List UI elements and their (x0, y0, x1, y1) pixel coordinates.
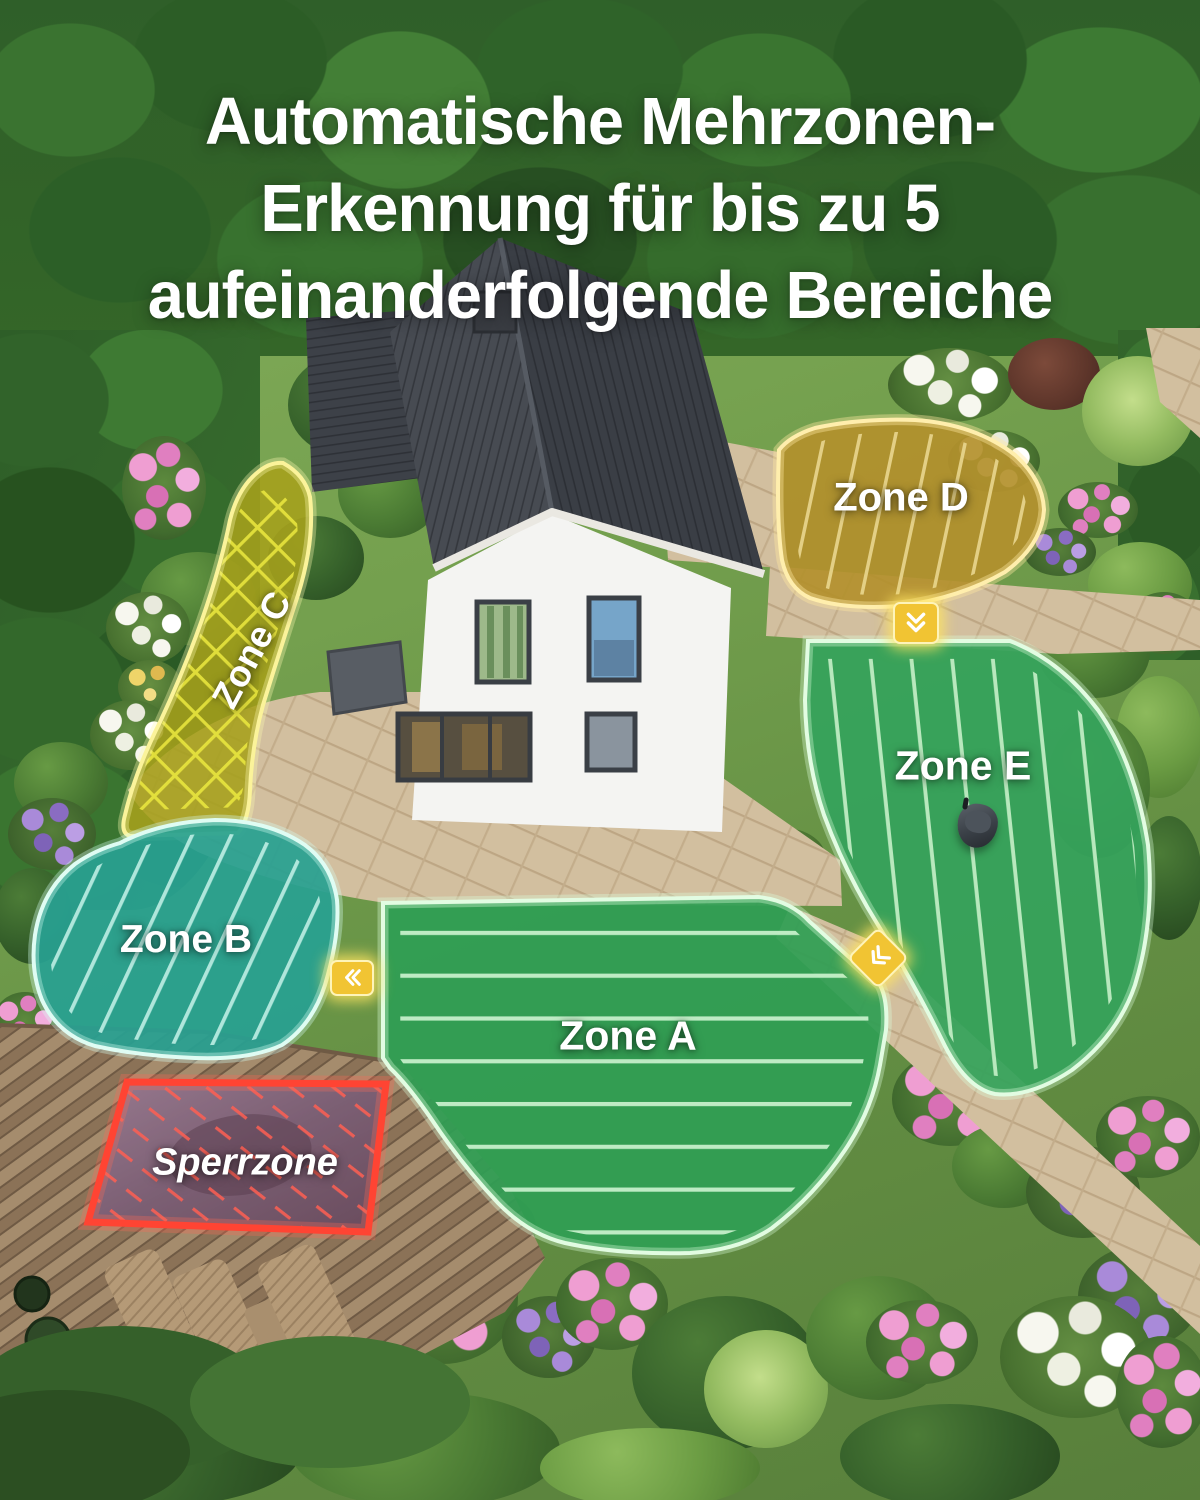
headline-line-3: aufeinanderfolgende Bereiche (37, 252, 1162, 339)
zone-a-label: Zone A (559, 1013, 696, 1060)
headline-line-1: Automatische Mehrzonen- (37, 78, 1162, 165)
restricted-zone-label: Sperrzone (152, 1142, 338, 1185)
zone-b-to-a-transition-marker (330, 960, 374, 996)
zone-e-label: Zone E (895, 743, 1032, 790)
window-upper-left (477, 602, 529, 682)
chevron-double-down-icon (903, 610, 929, 636)
chevron-double-down-left-icon (861, 941, 895, 975)
zone-d-label: Zone D (833, 476, 969, 521)
window-upper-right (589, 598, 639, 680)
patio-door (398, 714, 530, 780)
headline-line-2: Erkennung für bis zu 5 (37, 165, 1162, 252)
robot-mower-icon (953, 801, 1003, 856)
zone-b-label: Zone B (120, 918, 252, 962)
house-facade (412, 514, 731, 832)
headline: Automatische Mehrzonen- Erkennung für bi… (37, 78, 1162, 339)
zone-d-to-e-transition-marker (893, 602, 939, 644)
awning (328, 642, 406, 714)
garden-aerial-scene: Zone A Zone B Zone C Zone D Zone E Sperr… (0, 0, 1200, 1500)
chevron-double-left-icon (340, 967, 364, 989)
window-lower-right (587, 714, 635, 770)
